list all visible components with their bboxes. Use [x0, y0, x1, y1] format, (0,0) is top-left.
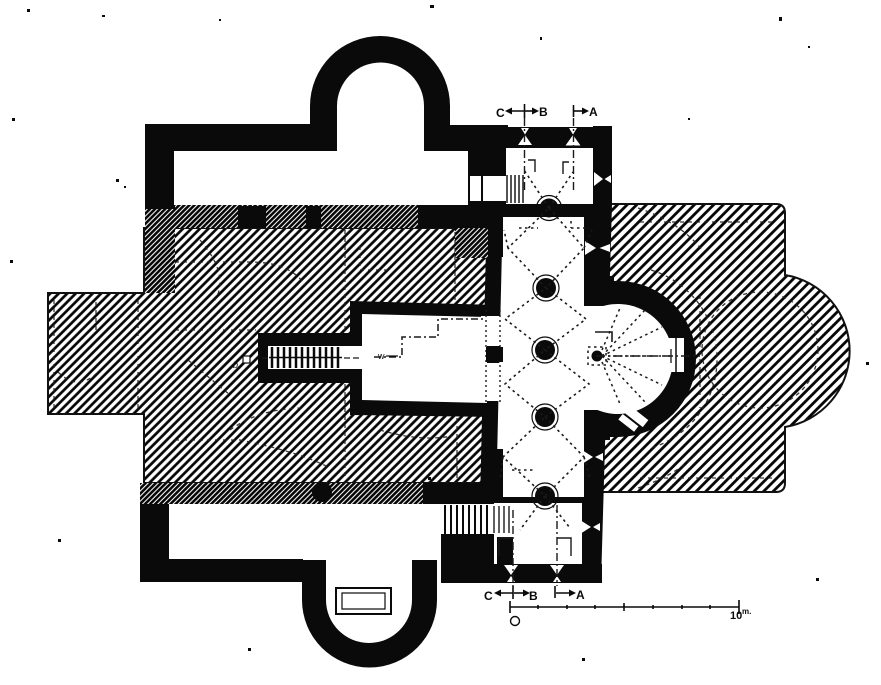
svg-text:10: 10 — [730, 610, 742, 622]
svg-text:A: A — [589, 105, 598, 119]
svg-text:w: w — [377, 351, 385, 361]
svg-text:B: B — [539, 105, 548, 119]
svg-text:b: b — [233, 360, 238, 370]
svg-text:m.: m. — [742, 607, 751, 616]
svg-text:C: C — [484, 589, 493, 603]
svg-text:A: A — [576, 588, 585, 602]
svg-text:C: C — [496, 106, 505, 120]
svg-text:B: B — [529, 589, 538, 603]
